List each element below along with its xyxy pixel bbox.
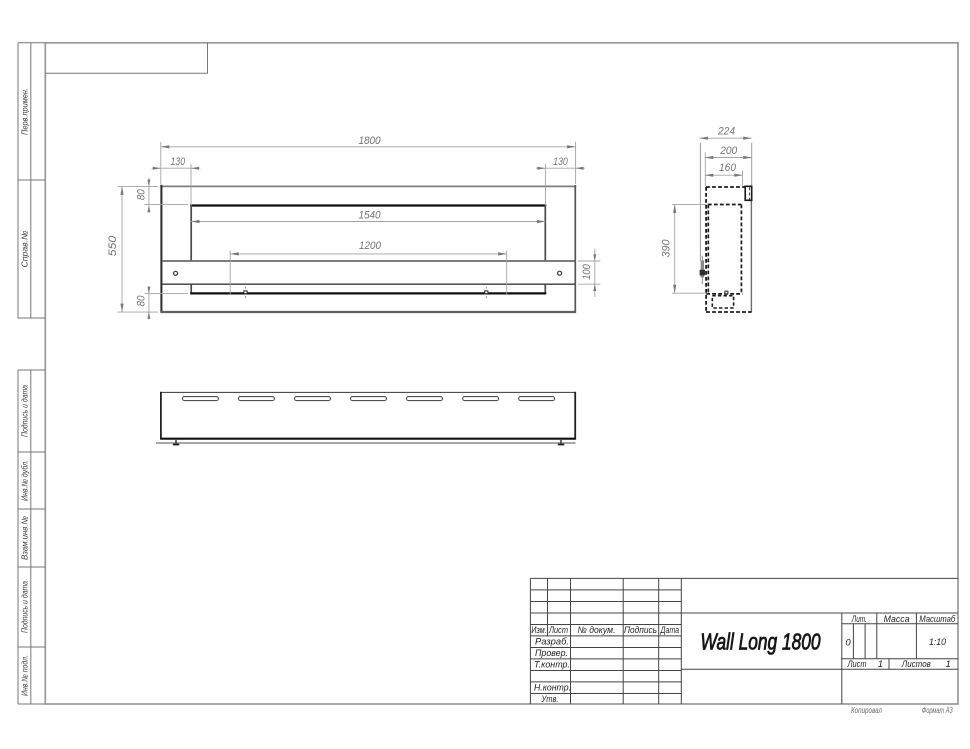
svg-text:1200: 1200 — [359, 240, 382, 252]
svg-text:130: 130 — [553, 156, 568, 168]
svg-text:Листов: Листов — [901, 659, 931, 670]
svg-text:Т.контр.: Т.контр. — [534, 660, 570, 671]
svg-text:Утв.: Утв. — [541, 694, 559, 705]
svg-text:Инв.№ дубл.: Инв.№ дубл. — [19, 460, 29, 501]
svg-text:Инв.№ подл.: Инв.№ подл. — [19, 655, 29, 696]
svg-text:1: 1 — [946, 659, 951, 670]
svg-text:80: 80 — [136, 295, 148, 307]
svg-text:Подпись и дата: Подпись и дата — [19, 581, 29, 633]
svg-text:Провер.: Провер. — [535, 648, 568, 659]
svg-text:Лит.: Лит. — [851, 614, 867, 625]
svg-text:Лист: Лист — [548, 625, 568, 636]
svg-text:1540: 1540 — [359, 210, 382, 222]
svg-text:224: 224 — [717, 125, 735, 137]
svg-text:130: 130 — [171, 156, 186, 168]
svg-text:№ докум.: № докум. — [578, 625, 616, 636]
svg-text:Масса: Масса — [884, 614, 910, 625]
svg-text:100: 100 — [581, 264, 593, 280]
svg-text:Лист: Лист — [847, 659, 867, 670]
svg-text:Копировал: Копировал — [851, 706, 882, 715]
svg-text:1:10: 1:10 — [929, 637, 947, 648]
svg-text:Подпись: Подпись — [624, 625, 657, 636]
svg-text:Взам.инв.№: Взам.инв.№ — [19, 516, 29, 560]
svg-text:Изм.: Изм. — [531, 625, 547, 636]
svg-text:Wall Long 1800: Wall Long 1800 — [701, 629, 821, 655]
svg-text:1: 1 — [878, 659, 883, 670]
svg-text:550: 550 — [107, 235, 119, 256]
svg-text:Формат А3: Формат А3 — [922, 706, 953, 715]
svg-text:Перв.примен.: Перв.примен. — [19, 88, 29, 135]
svg-text:200: 200 — [719, 145, 738, 157]
svg-text:Масштаб: Масштаб — [919, 614, 956, 625]
svg-text:0: 0 — [845, 638, 851, 649]
svg-text:390: 390 — [661, 239, 673, 258]
svg-text:160: 160 — [719, 162, 737, 174]
svg-text:80: 80 — [136, 189, 148, 201]
svg-text:Подпись и дата: Подпись и дата — [19, 385, 29, 437]
svg-text:Н.контр.: Н.контр. — [534, 683, 571, 694]
svg-text:Дата: Дата — [660, 625, 679, 636]
svg-text:Справ.№: Справ.№ — [19, 231, 29, 268]
svg-text:Разраб.: Разраб. — [535, 637, 569, 648]
svg-text:1800: 1800 — [359, 135, 382, 147]
